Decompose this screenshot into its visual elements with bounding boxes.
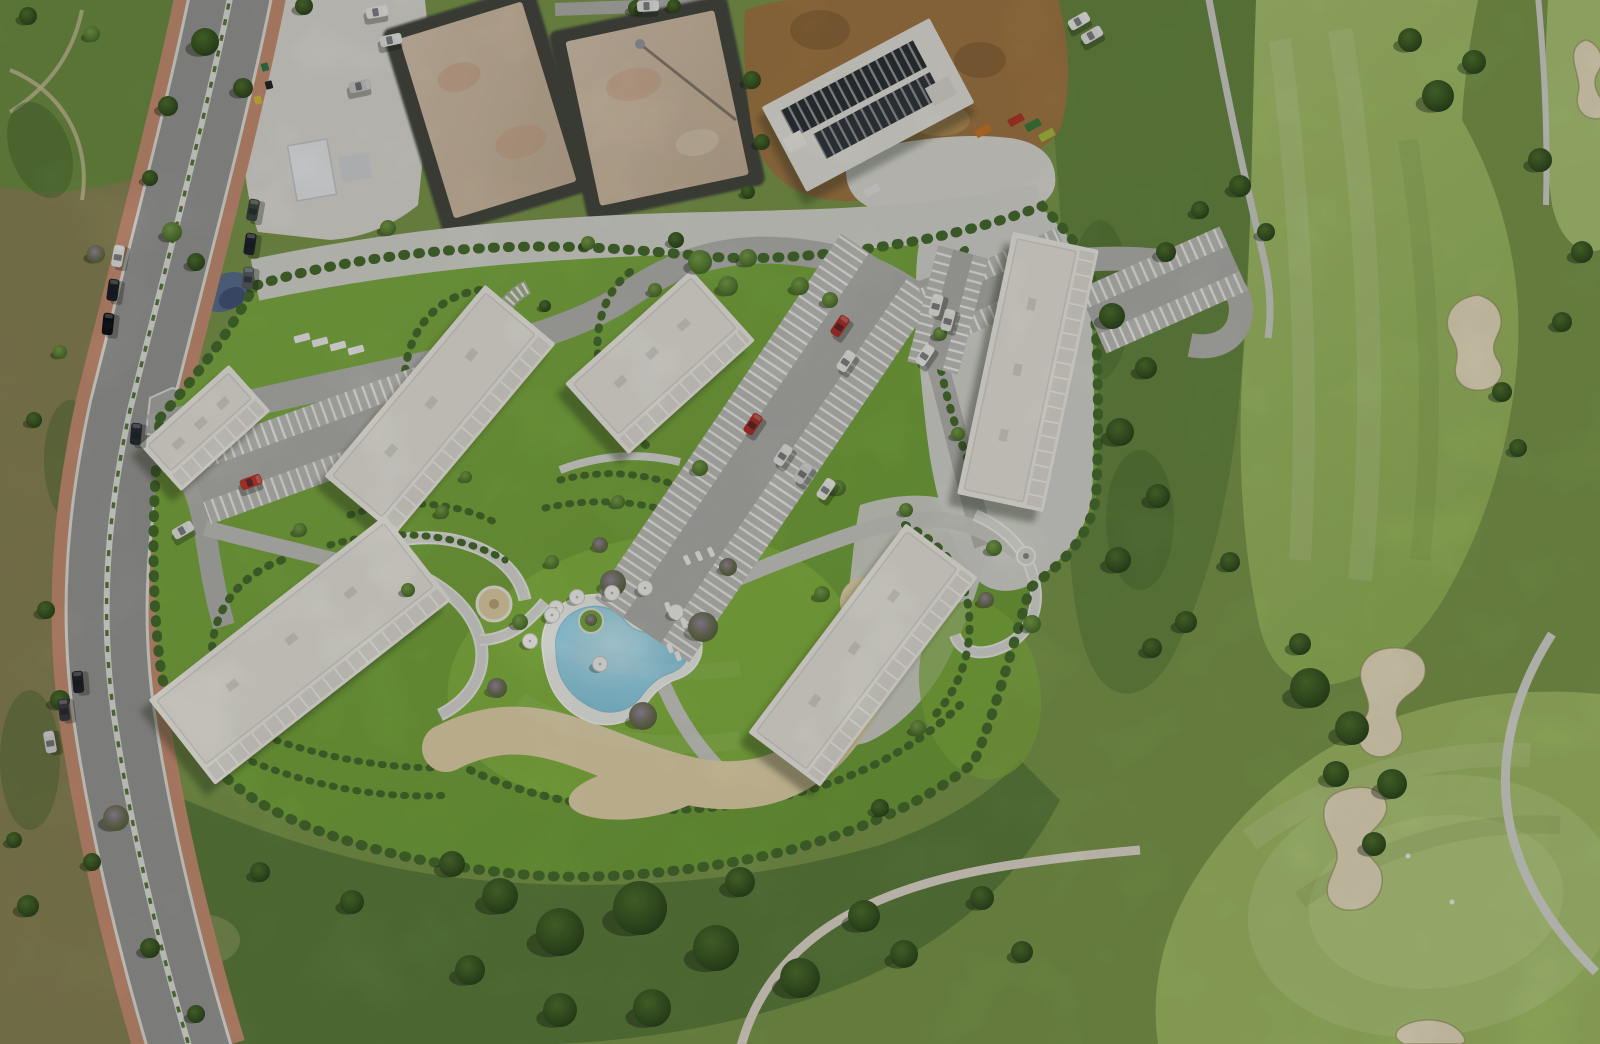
photo-grain-overlay <box>0 0 1600 1044</box>
aerial-site-plan <box>0 0 1600 1044</box>
satellite-image <box>0 0 1600 1044</box>
